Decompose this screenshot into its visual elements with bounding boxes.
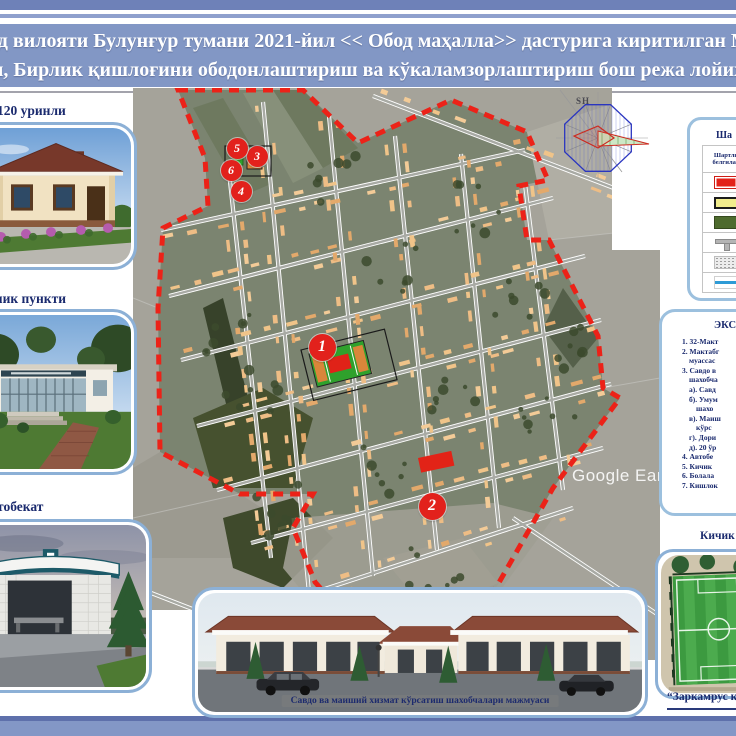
map-marker-1: 1 (309, 334, 336, 361)
mini-stadium-render-image (661, 555, 736, 693)
explication-line: 6. Болала (682, 471, 736, 481)
legend-row-green-rect (703, 213, 736, 233)
map-marker-3: 3 (247, 146, 268, 167)
trade-complex-caption: Савдо ва маиший хизмат кўрсатиш шахобчал… (282, 695, 559, 707)
bus-stop-render-image (0, 525, 146, 687)
legend-row-blue-line (703, 273, 736, 293)
cottage-render-image (0, 128, 131, 264)
explication-line: 4. Автобе (682, 452, 736, 462)
legend-row-yellow-rect (703, 193, 736, 213)
title-line-2: и, Бирлик қишлоғини ободонлаштириш ва кў… (0, 56, 736, 85)
gravel-symbol-icon (714, 256, 736, 269)
top-bar (0, 0, 736, 10)
map-marker-5: 5 (227, 138, 248, 159)
label-bus-station: тобекат (0, 499, 43, 515)
legend-column-header-1: Шартли (714, 152, 736, 159)
legend-column-header-2: белгилар (713, 159, 736, 166)
explication-line: а). Савд (682, 385, 736, 395)
legend-row-road-section (703, 233, 736, 253)
top-bar-accent (0, 14, 736, 18)
explication-line: муассас (682, 356, 736, 366)
road-section-symbol-icon (715, 237, 736, 249)
mini-stadium-panel (655, 549, 736, 699)
clinic-panel (0, 309, 137, 475)
explication-line: 1. 32-Макт (682, 337, 736, 347)
cottage-panel (0, 122, 137, 270)
map-marker-2: 2 (419, 493, 446, 520)
explication-line: шахо (682, 404, 736, 414)
blue-line-symbol-icon (714, 276, 736, 289)
bus-stop-panel (0, 519, 152, 693)
label-guesthouse: 120 уринли (0, 103, 66, 119)
explication-line: 3. Савдо в (682, 366, 736, 376)
explication-line: г). Дори (682, 433, 736, 443)
label-mini-stadium: Кичик (700, 530, 735, 542)
explication-line: 7. Кишлок (682, 481, 736, 491)
map-marker-4: 4 (231, 181, 252, 202)
legend-panel: Ша Шартли белгилар (687, 117, 736, 301)
poster-root: нд вилояти Булунғур тумани 2021-йил << О… (0, 0, 736, 736)
trade-complex-panel: Савдо ва маиший хизмат кўрсатиш шахобчал… (192, 587, 648, 718)
explication-line: д). 20 ўр (682, 443, 736, 453)
compass-north-label: SH (576, 96, 590, 106)
yellow-rect-symbol-icon (714, 197, 736, 209)
credit-underline (667, 708, 736, 710)
explication-line: 5. Кичик (682, 462, 736, 472)
explication-line: 2. Мактабг (682, 347, 736, 357)
explication-line: б). Умум (682, 395, 736, 405)
explication-line: кўрс (682, 423, 736, 433)
title-line-1: нд вилояти Булунғур тумани 2021-йил << О… (0, 27, 736, 56)
legend-row-gravel (703, 253, 736, 273)
legend-row-red-rect (703, 173, 736, 193)
explication-panel: ЭКС 1. 32-Макт2. Мактабгмуассас3. Савдо … (659, 309, 736, 516)
green-rect-symbol-icon (714, 216, 736, 229)
label-health-point: лик пункти (0, 291, 66, 307)
google-earth-watermark: Google Eart (572, 466, 668, 486)
explication-line: в). Маиш (682, 414, 736, 424)
explication-title: ЭКС (714, 320, 736, 331)
legend-title: Ша (716, 130, 736, 141)
title-band: нд вилояти Булунғур тумани 2021-йил << О… (0, 24, 736, 87)
wind-rose-diagram (552, 84, 652, 179)
red-rect-symbol-icon (714, 176, 736, 189)
design-company-credit: “Заркамрус қ (667, 691, 736, 703)
bottom-bar (0, 721, 736, 736)
legend-table: Шартли белгилар (702, 145, 736, 293)
clinic-render-image (0, 315, 131, 469)
map-marker-6: 6 (221, 160, 242, 181)
explication-line: шахобча (682, 375, 736, 385)
